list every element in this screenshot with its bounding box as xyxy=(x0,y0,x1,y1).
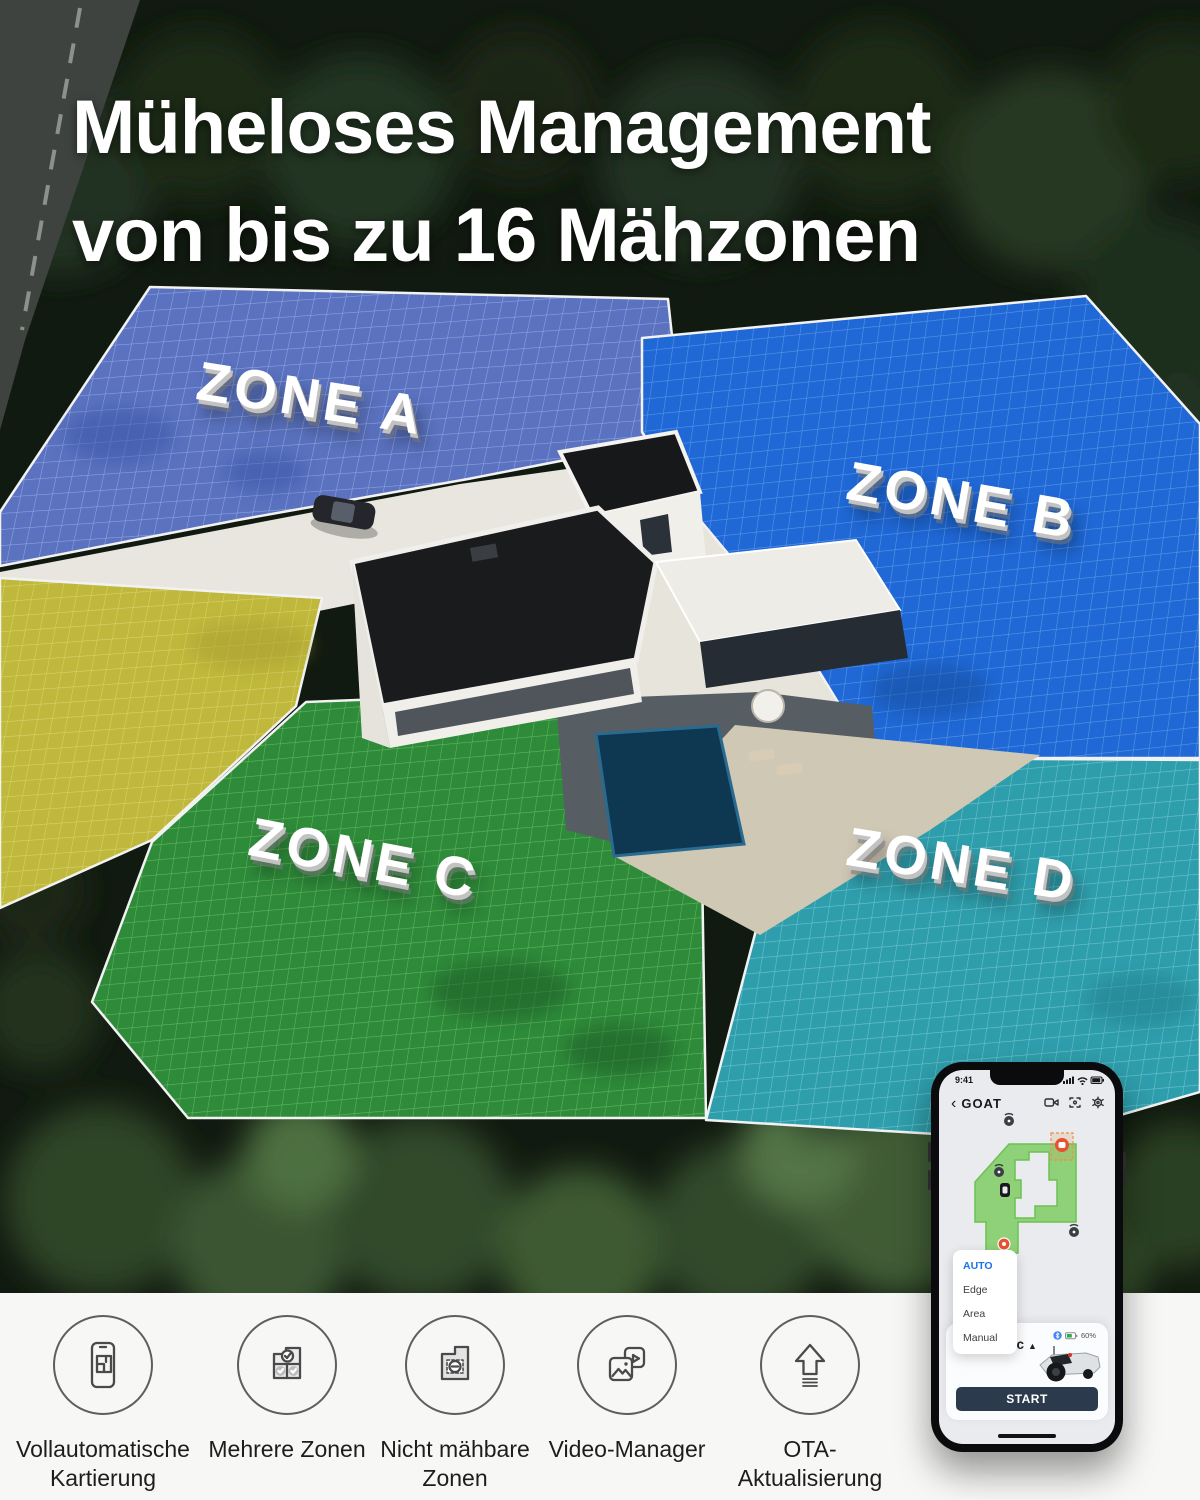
app-header-title: GOAT xyxy=(961,1096,1002,1111)
robot-marker-icon[interactable] xyxy=(1051,1133,1073,1160)
phone-mockup: 9:41 ‹GOAT xyxy=(931,1062,1123,1452)
feature-item: Mehrere Zonen xyxy=(192,1315,382,1464)
page: Müheloses Management von bis zu 16 Mähzo… xyxy=(0,0,1200,1500)
ota-update-icon xyxy=(782,1337,838,1393)
app-screen: 9:41 ‹GOAT xyxy=(939,1070,1115,1444)
page-title-line2: von bis zu 16 Mähzonen xyxy=(72,182,1132,290)
feature-ring xyxy=(577,1315,677,1415)
multi-zone-icon xyxy=(259,1337,315,1393)
home-indicator[interactable] xyxy=(998,1434,1056,1438)
dropdown-option-auto[interactable]: AUTO xyxy=(953,1254,1017,1278)
start-button[interactable]: START xyxy=(956,1387,1098,1411)
feature-ring xyxy=(53,1315,153,1415)
feature-ring xyxy=(237,1315,337,1415)
umbrella xyxy=(752,690,784,722)
battery-percent: 60% xyxy=(1081,1331,1096,1340)
page-title-line1: Müheloses Management xyxy=(72,74,1132,182)
mode-dropdown: AUTO Edge Area Manual xyxy=(953,1250,1017,1354)
battery-icon xyxy=(1065,1332,1078,1340)
page-title: Müheloses Management von bis zu 16 Mähzo… xyxy=(72,74,1132,290)
no-mow-zone-icon xyxy=(427,1337,483,1393)
robot-status: 60% xyxy=(1053,1331,1096,1340)
phone-power-button xyxy=(1123,1152,1126,1186)
back-chevron-icon: ‹ xyxy=(951,1095,957,1112)
beacon-icon xyxy=(1069,1225,1079,1237)
status-icons xyxy=(1063,1075,1105,1085)
video-manager-icon xyxy=(599,1337,655,1393)
feature-item: Nicht mähbare Zonen xyxy=(360,1315,550,1492)
feature-label: Video-Manager xyxy=(549,1435,706,1464)
charging-station-icon[interactable] xyxy=(1000,1183,1010,1197)
feature-label: OTA-Aktualisierung xyxy=(715,1435,905,1492)
dropdown-option-area[interactable]: Area xyxy=(953,1302,1017,1326)
map-icon[interactable] xyxy=(1068,1096,1082,1109)
back-button[interactable]: ‹GOAT xyxy=(951,1095,1002,1113)
gear-icon[interactable] xyxy=(1091,1096,1105,1109)
feature-item: Video-Manager xyxy=(532,1315,722,1464)
status-bar: 9:41 xyxy=(939,1073,1115,1087)
battery-icon xyxy=(1091,1077,1104,1084)
dropdown-option-manual[interactable]: Manual xyxy=(953,1326,1017,1350)
feature-item: Vollautomatische Kartierung xyxy=(8,1315,198,1492)
video-camera-icon[interactable] xyxy=(1044,1096,1059,1109)
feature-ring xyxy=(760,1315,860,1415)
feature-label: Nicht mähbare Zonen xyxy=(360,1435,550,1492)
feature-ring xyxy=(405,1315,505,1415)
feature-item: OTA-Aktualisierung xyxy=(715,1315,905,1492)
status-time: 9:41 xyxy=(955,1075,973,1085)
bluetooth-icon xyxy=(1053,1331,1062,1340)
feature-label: Mehrere Zonen xyxy=(208,1435,365,1464)
app-header: ‹GOAT xyxy=(939,1090,1115,1118)
dropdown-option-edge[interactable]: Edge xyxy=(953,1278,1017,1302)
phone-mapping-icon xyxy=(75,1337,131,1393)
phone-volume-button xyxy=(928,1142,931,1162)
wifi-icon xyxy=(1078,1078,1087,1085)
phone-volume-button xyxy=(928,1170,931,1190)
gear-marker-icon[interactable] xyxy=(998,1238,1010,1250)
robot-mower-image xyxy=(1034,1343,1104,1385)
feature-label: Vollautomatische Kartierung xyxy=(8,1435,198,1492)
